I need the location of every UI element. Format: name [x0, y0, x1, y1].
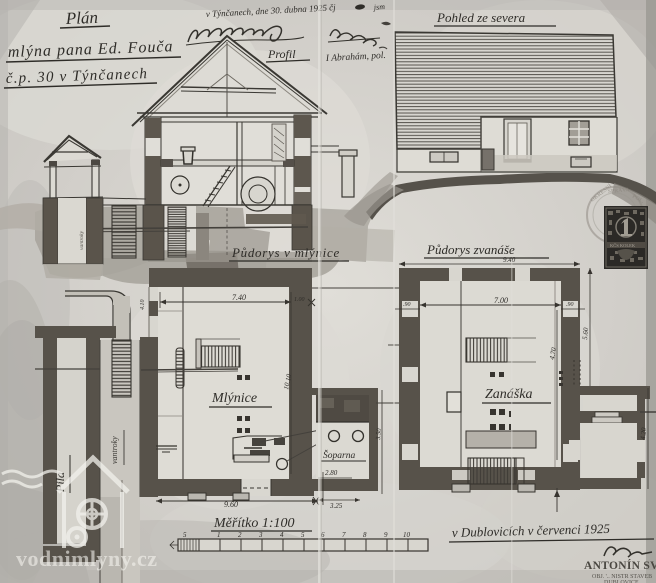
svg-text:Zanáška: Zanáška: [485, 387, 532, 402]
svg-text:4.20: 4.20: [639, 427, 648, 440]
svg-text:3.50: 3.50: [375, 427, 383, 441]
svg-text:ANTONÍN SVAK: ANTONÍN SVAK: [584, 558, 656, 572]
svg-text:Profil: Profil: [267, 47, 296, 61]
svg-text:7: 7: [342, 531, 346, 539]
svg-text:1.00: 1.00: [294, 297, 305, 303]
svg-text:vantroky: vantroky: [79, 230, 85, 250]
svg-text:5: 5: [301, 531, 305, 539]
svg-text:Půdorys v mlýnice: Půdorys v mlýnice: [231, 245, 340, 260]
svg-text:1: 1: [217, 531, 221, 539]
svg-text:jsm: jsm: [372, 2, 385, 12]
svg-text:9: 9: [384, 531, 388, 539]
svg-text:2.80: 2.80: [325, 469, 338, 477]
svg-text:Mlýnice: Mlýnice: [211, 391, 257, 406]
svg-text:.90: .90: [566, 302, 574, 308]
svg-text:KČS KOLEK: KČS KOLEK: [610, 243, 636, 248]
svg-text:7.00: 7.00: [494, 296, 508, 305]
svg-text:5.60: 5.60: [581, 327, 590, 340]
svg-text:Měřítko 1:100: Měřítko 1:100: [213, 516, 294, 531]
svg-text:10: 10: [403, 531, 411, 539]
svg-text:3.25: 3.25: [329, 502, 343, 510]
svg-text:2: 2: [238, 531, 242, 539]
svg-text:3: 3: [258, 531, 263, 539]
svg-text:vodnimlyny.cz: vodnimlyny.cz: [16, 546, 158, 571]
svg-text:4: 4: [280, 531, 284, 539]
svg-text:9.60: 9.60: [224, 500, 238, 509]
svg-text:Půdorys zvanáše: Půdorys zvanáše: [426, 242, 515, 257]
svg-text:Šoparna: Šoparna: [323, 449, 355, 461]
svg-text:.90: .90: [403, 302, 411, 308]
svg-text:vantroky: vantroky: [110, 436, 119, 464]
svg-text:9.40: 9.40: [503, 256, 516, 264]
svg-text:Plán: Plán: [64, 8, 98, 28]
svg-text:5: 5: [183, 531, 187, 539]
svg-text:8: 8: [363, 531, 367, 539]
svg-text:Pohled ze severa: Pohled ze severa: [436, 10, 526, 25]
svg-text:4.10: 4.10: [139, 300, 146, 311]
svg-text:7.40: 7.40: [232, 293, 246, 302]
